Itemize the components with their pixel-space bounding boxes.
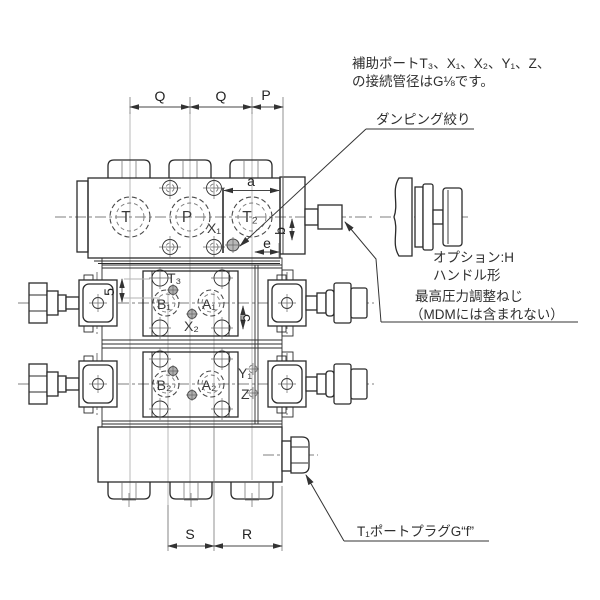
label-port-a2: A₂ — [202, 377, 217, 393]
t1-plug-leader — [306, 475, 344, 541]
section2-left-end — [29, 356, 117, 413]
label-port-t2: T₂ — [242, 209, 258, 226]
section1-right-end — [268, 275, 367, 332]
t1-port-plug — [282, 437, 309, 473]
section1-left-end — [29, 275, 117, 332]
label-port-t3: T₃ — [167, 270, 181, 286]
dim-q-left: Q — [155, 88, 166, 104]
handle-option-drawing — [394, 178, 462, 256]
dim-p: P — [261, 87, 270, 103]
note-damping: ダンピング絞り — [376, 112, 471, 127]
damping-leader — [240, 129, 366, 246]
port-t: T — [110, 197, 150, 237]
label-port-b2: B₂ — [157, 377, 172, 393]
note-pressure-line1: 最高圧力調整ねじ — [415, 288, 523, 304]
dim-r: R — [242, 526, 252, 542]
note-aux-ports-line1: 補助ポートT₃、X₁、X₂、Y₁、Z、 — [352, 56, 550, 71]
port-p: P — [170, 197, 210, 237]
pressure-adjust-port — [305, 205, 342, 229]
port-t2: T₂ — [232, 197, 272, 237]
label-port-x1: X₁ — [207, 220, 221, 236]
dim-5-left: 5 — [101, 288, 117, 296]
dim-top: Q Q P — [130, 87, 283, 178]
section2-right-end — [268, 356, 367, 413]
note-option-line1: オプション:H — [433, 250, 514, 265]
dim-e: e — [263, 235, 271, 251]
label-port-z: Z — [241, 386, 250, 402]
damping-orifice-screw — [225, 237, 241, 253]
label-port-t: T — [121, 209, 131, 226]
note-pressure-line2: （MDMには含まれない） — [410, 307, 564, 322]
top-port-block: T P T₂ X₁ — [77, 160, 342, 264]
manifold-stack — [102, 258, 293, 427]
dim-b: b — [272, 227, 288, 235]
section1-body: T₃ B₁ A₁ X₂ — [143, 267, 238, 339]
note-aux-ports-line2: の接続管径はG⅛です。 — [352, 73, 494, 89]
drawing-canvas: T P T₂ X₁ — [0, 0, 600, 600]
bottom-bolts — [108, 482, 273, 507]
dim-a: a — [247, 173, 255, 189]
dim-q-right: Q — [216, 88, 227, 104]
offset-dimensions: 5 5 — [101, 279, 253, 329]
valve-outline-drawing: T P T₂ X₁ — [0, 0, 600, 600]
valve-section-1: T₃ B₁ A₁ X₂ 5 5 — [29, 267, 367, 339]
label-port-x2: X₂ — [184, 318, 199, 334]
label-port-p: P — [182, 209, 192, 226]
dim-s: S — [185, 526, 194, 542]
label-port-y1: Y₁ — [238, 365, 252, 381]
valve-section-2: B₂ A₂ Y₁ Z — [29, 348, 367, 420]
note-t1-plug: T₁ポートプラグG“f” — [357, 524, 474, 539]
label-port-a1: A₁ — [202, 296, 216, 312]
dim-bottom: S R — [168, 428, 282, 551]
note-option-line2: ハンドル形 — [433, 268, 501, 283]
dim-5-right: 5 — [237, 314, 253, 322]
